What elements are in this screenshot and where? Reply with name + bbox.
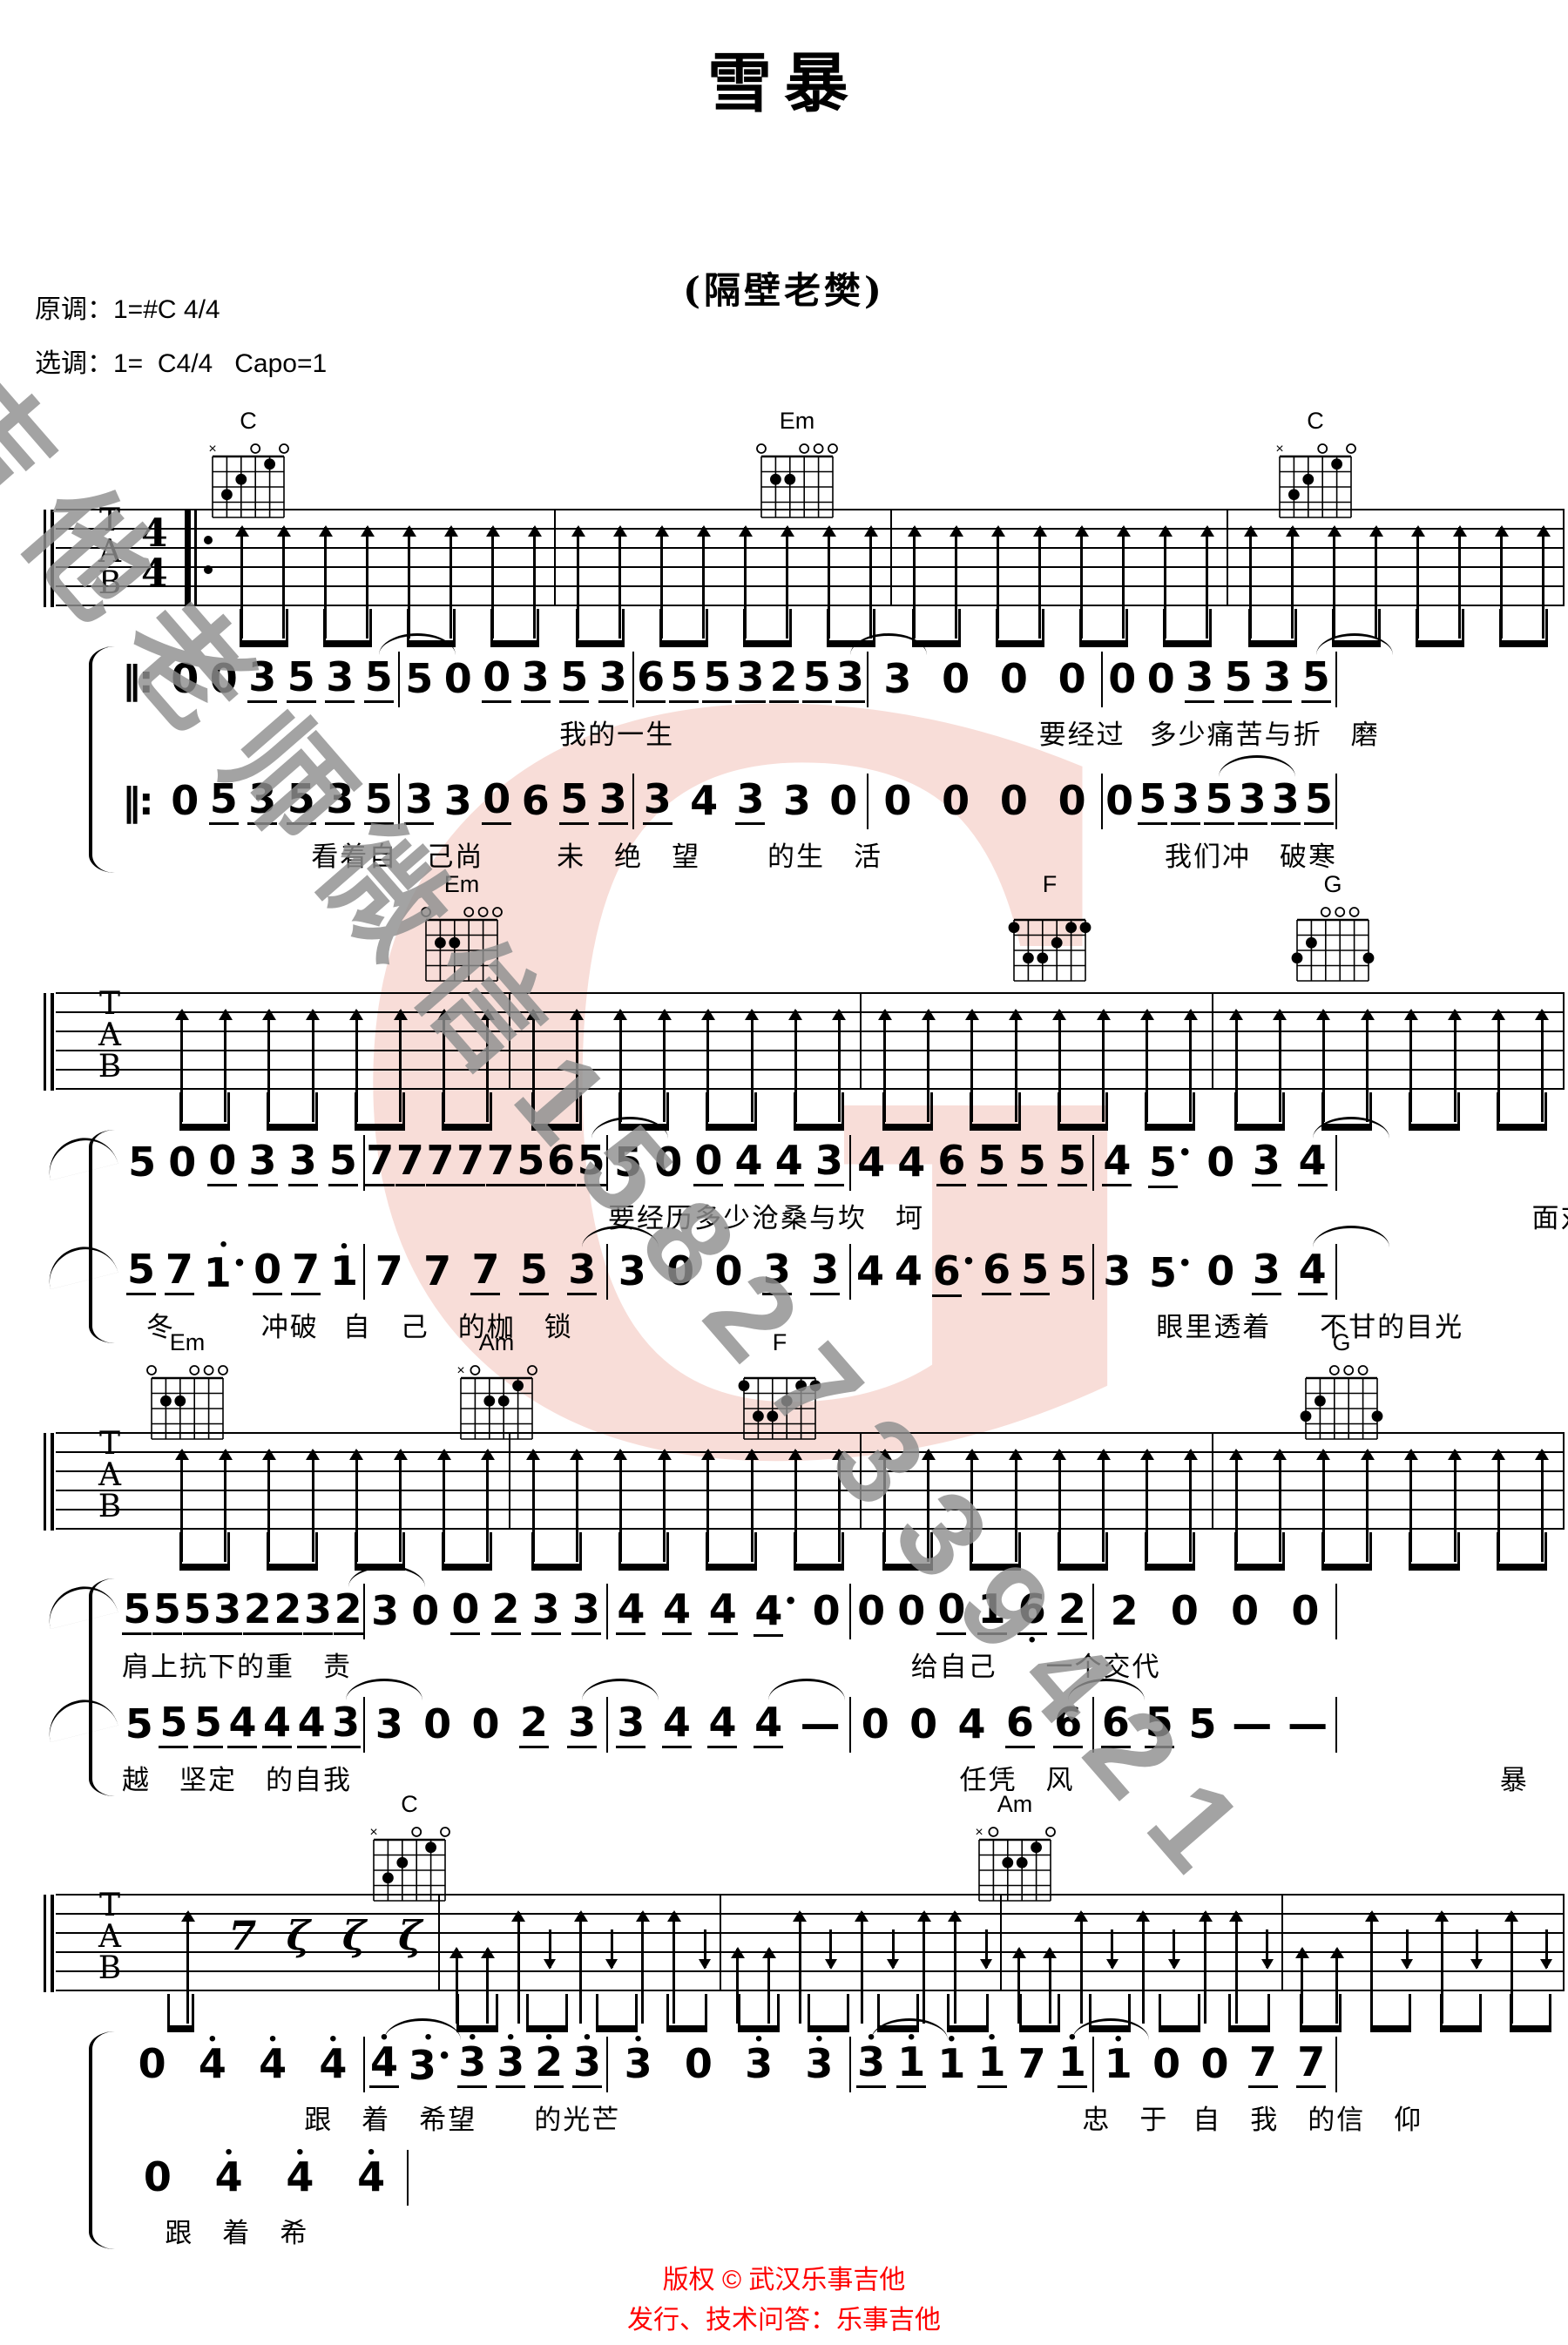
time-signature-digit: 4 [141,551,168,596]
note-digit: 0 [812,1590,841,1634]
jianpu-note: 3 [248,1139,278,1186]
jianpu-note: 4 [1298,1248,1328,1295]
jianpu-note: 3 [457,2041,487,2088]
quarter-rest: ζ [287,1912,310,1959]
jianpu-note: 5 [1224,656,1254,703]
lyric-measure: 我们冲 破寒 [1092,835,1337,871]
beam-group [1510,1994,1551,2032]
note-digit: 0 [999,658,1029,702]
jianpu-note: 7 [291,1248,321,1295]
tab-measures [159,993,1565,1089]
jianpu-note: 0 [138,2043,167,2087]
system-start-bar-outer [44,993,46,1091]
jianpu-note: 5 [613,1141,643,1186]
jianpu-note: 2 [769,656,799,703]
jianpu-note: 5 [1017,1139,1047,1186]
jianpu-note: 1 [1058,2041,1087,2088]
beam-group [179,1092,230,1131]
jianpu-note: 3 [288,1139,318,1186]
jianpu-note: 0 [882,780,912,824]
chord-diagram: F [1006,871,1093,992]
jianpu-note: 5 [122,1588,152,1635]
chord-name: F [1006,871,1093,897]
beam-group [882,1092,933,1131]
downstroke-arrow [704,1929,706,1968]
jianpu-measure: 3000 [868,652,1103,707]
note-digit: 5 [1020,1248,1050,1295]
note-digit: 4 [1298,1139,1328,1186]
tab-measure [556,510,892,605]
chord-name: G [1289,871,1376,897]
chord-name: F [736,1329,823,1355]
note-digit: 3 [882,658,912,702]
jianpu-measure: 30023 [365,1697,608,1753]
lyric-measure [929,835,1092,871]
note-digit: 0 [422,1703,452,1747]
note-digit: 2 [1110,1590,1139,1634]
note-digit: 0 [693,1139,723,1186]
chord-name: Em [754,408,841,434]
note-digit: 4 [227,1701,257,1748]
jianpu-note: 3 [496,2041,525,2088]
note-digit: 7 [291,1248,321,1295]
jianpu-measure: 053535 [166,774,400,829]
tab-measure [721,1895,1003,1990]
beam-group [576,609,625,647]
jianpu-measure: 571•071 [122,1244,365,1300]
beam-group [659,609,708,647]
beam-group [1079,609,1128,647]
note-digit: 5 [1138,778,1167,825]
jianpu-line: 5554443300233444—00466655—— [122,1697,1337,1753]
lyric-measure: 肩上抗下的重 责 [122,1645,352,1681]
note-digit: 6 [936,1139,966,1186]
note-digit: 3 [835,656,865,703]
note-digit: 0 [936,1588,966,1635]
jianpu-measure: 003535 [166,652,400,707]
jianpu-note: 5 [404,658,434,702]
note-digit: 2 [519,1701,549,1748]
jianpu-note: 0 [693,1139,723,1186]
lyric-measure: 多少沧桑与坎 坷 [694,1196,924,1233]
note-digit: 3 [531,1588,561,1635]
note-digit: 5 [1058,1250,1088,1294]
jianpu-note: 6 [936,1139,966,1186]
beam-group [794,1532,844,1571]
note-digit: 5 [1017,1139,1047,1186]
note-digit: 7 [365,1139,395,1186]
system-brace [89,1130,115,1343]
note-digit: 5 [1301,656,1331,703]
jianpu-note: 4• [754,1586,795,1637]
tab-measure [159,1433,510,1529]
jianpu-note: 2 [1110,1590,1139,1634]
upstroke-arrow [861,1912,863,2024]
jianpu-line: ‖:0535353306533433000000535335 [122,774,1337,829]
note-digit: 3 [598,778,628,825]
note-digit: 1 [329,1250,359,1294]
note-digit: 0 [1170,1590,1200,1634]
jianpu-note: 5 [287,656,316,703]
jianpu-measure: 0444 [122,2037,365,2092]
jianpu-measure: 55532232 [122,1584,365,1639]
jianpu-measure: 500353 [400,652,634,707]
jianpu-note: 3• [408,2041,449,2089]
beam-group [794,1092,844,1131]
beam-group [1416,609,1464,647]
beam-group [179,1532,230,1571]
note-digit: 2 [334,1588,363,1635]
lyric-measure: 自 我 的信 仰 [1168,2098,1423,2134]
jianpu-note: 3 [835,656,865,703]
dotted-note-dot: • [235,1248,245,1277]
tab-measure [1213,993,1565,1089]
note-digit: 4 [616,1588,645,1635]
note-digit: 5 [125,1703,154,1747]
jianpu-measure: 34330 [634,774,868,829]
beam-group [1159,1994,1200,2032]
note-digit: 3 [496,2041,525,2088]
tab-staff: TAB [56,1433,1565,1529]
jianpu-note: 0 [1152,2043,1181,2087]
beam-group [1440,1994,1482,2032]
note-digit: 4 [198,2043,227,2087]
beam-group [1300,1994,1342,2032]
beam-group [442,1092,492,1131]
jianpu-note: 4 [198,2043,227,2087]
tab-letter: A [92,534,127,570]
note-digit: 5 [126,1248,156,1295]
beam-group [442,1532,492,1571]
jianpu-note: 0 [207,1139,237,1186]
jianpu-measure: 4444•0 [608,1584,851,1639]
downstroke-arrow [985,1929,988,1968]
lyric-row: 要经历多少沧桑与坎 坷面对着生 活 抛给你的苦涩 抱着 [122,1196,1337,1233]
jianpu-measure: 300233 [365,1584,608,1639]
downstroke-arrow [829,1929,832,1968]
jianpu-note: 0 [1206,1250,1235,1294]
note-digit: 3 [810,1248,840,1295]
jianpu-note: 2 [534,2041,564,2088]
note-digit: — [1287,1703,1328,1747]
downstroke-arrow [549,1929,551,1968]
note-digit: 1 [936,2043,966,2087]
note-digit: 2 [273,1588,302,1635]
jianpu-note: 7 [486,1139,516,1186]
note-digit: 5 [519,1248,549,1295]
jianpu-note: 5 [1020,1248,1050,1295]
jianpu-note: 0 [482,778,511,825]
jianpu-note: 3 [735,778,765,825]
jianpu-measure: 6553253 [634,652,868,707]
note-digit: 7 [422,1250,452,1294]
jianpu-note: 6 [1005,1701,1035,1748]
jianpu-note: 6 [1101,1701,1131,1748]
note-digit: 7 [1017,2043,1047,2087]
jianpu-note: 3 [443,780,473,824]
note-digit: 5 [577,1139,606,1186]
note-digit: 0 [1146,658,1176,702]
tab-measure [1002,1895,1283,1990]
jianpu-measure: 330653 [400,774,634,829]
jianpu-note: 6 [636,656,666,703]
note-digit: 7 [395,1139,425,1186]
tab-measure [510,993,862,1089]
jianpu-note: 5 [669,656,699,703]
note-digit: 0 [482,656,511,703]
note-digit: 4 [707,1701,737,1748]
beam-group [1145,1092,1195,1131]
jianpu-note: 0 [941,780,970,824]
downstroke-arrow [611,1929,613,1968]
note-digit: 5 [122,1588,152,1635]
jianpu-note: 5 [802,656,832,703]
jianpu-note: 0 [1105,780,1134,824]
jianpu-line: 044443•3323303331117110077 [122,2037,1337,2092]
note-digit: 5 [1148,1141,1178,1188]
jianpu-note: 0 [143,2156,172,2200]
jianpu-note: 4 [227,1701,257,1748]
beam-group [1321,1532,1372,1571]
jianpu-note: 4 [754,1701,783,1748]
jianpu-note: 5 [152,1588,182,1635]
beam-group [1058,1532,1108,1571]
beam-group [618,1532,669,1571]
note-digit: 5 [404,658,434,702]
jianpu-note: 0 [482,656,511,703]
jianpu-note: 3 [247,656,277,703]
lyric-measure: 忠 于 [620,2098,1168,2134]
note-digit: 4 [1102,1139,1132,1186]
note-digit: 5 [183,1588,213,1635]
jianpu-note: 0 [1058,658,1087,702]
note-digit: 0 [856,1590,886,1634]
jianpu-note: 5 [1058,1250,1088,1294]
downstroke-arrow [892,1929,895,1968]
jianpu-note: 3 [618,1250,647,1294]
jianpu-note: 2 [243,1588,273,1635]
note-digit: 4 [662,1588,692,1635]
note-digit: 3 [408,2044,437,2089]
repeat-dot [204,565,213,574]
note-digit: 6 [1017,1588,1047,1635]
note-digit: 0 [1152,2043,1181,2087]
note-digit: 5 [1204,778,1233,825]
note-digit: 6 [1101,1701,1131,1748]
beam-group [596,1994,638,2032]
note-digit: 5 [1058,1139,1087,1186]
tab-measure [862,1433,1213,1529]
note-digit: 3 [1252,1248,1281,1295]
jianpu-note: 3 [325,656,355,703]
beam-group [706,1092,756,1131]
tab-measures: 7ζζζ [159,1895,1565,1990]
tab-letter: T [92,1426,127,1462]
jianpu-measure: 000162 [851,1584,1094,1639]
upstroke-arrow [1204,1912,1206,2024]
tab-measure [1213,1433,1565,1529]
note-digit: 4 [689,780,719,824]
jianpu-note: 0 [999,780,1029,824]
note-digit: 3 [1252,1139,1281,1186]
jianpu-note: 1• [203,1248,245,1296]
tab-letter: B [92,1950,127,1986]
jianpu-note: 6 [521,780,551,824]
jianpu-note: 5• [1148,1138,1190,1188]
system-start-bar [51,993,54,1091]
system-start-bar-outer [44,510,46,607]
beam-group [970,1092,1020,1131]
note-digit: 0 [1058,658,1087,702]
note-digit: 0 [253,1248,282,1295]
lyric-row: 跟 着 希望 的光芒忠 于自 我 的信 仰并着 [122,2098,1337,2134]
jianpu-note: 4 [214,2156,244,2200]
lyric-measure: 眼里透着 [573,1305,1272,1341]
tab-measure [510,1433,862,1529]
jianpu-note: 1 [1104,2043,1133,2087]
jianpu-note: 0 [443,658,473,702]
chord-name: Am [453,1329,540,1355]
note-digit: 0 [1105,780,1134,824]
lyric-measure: 一个交代 [997,1645,1161,1681]
note-digit: 1 [977,1588,1007,1635]
note-digit: 0 [410,1590,440,1634]
repeat-bar-thin [194,510,197,605]
jianpu-note: 3 [744,2043,774,2087]
lyric-row: 跟 着 希 [122,2211,409,2247]
note-digit: 4 [956,1703,986,1747]
note-digit: 3 [375,1703,404,1747]
jianpu-note: 0 [1230,1590,1260,1634]
jianpu-note: 5 [1058,1139,1087,1186]
jianpu-note: 5 [559,656,589,703]
jianpu-note: 5 [516,1139,545,1186]
jianpu-note: 6 [1053,1701,1083,1748]
note-digit: 1 [203,1252,233,1296]
jianpu-note: 3 [762,1248,792,1295]
lyric-row: 越 坚定 的自我任凭 风暴卷 不倒我 [122,1758,1337,1794]
upstroke-arrow [517,1912,520,2024]
lyric-measure: 暴 [1075,1758,1529,1794]
lyric-measure: 跟 着 希 [122,2211,409,2247]
note-digit: 6 [521,780,551,824]
downstroke-arrow [1476,1929,1478,1968]
lyric-measure: 就好了 [1160,1645,1568,1681]
jianpu-line: 5003357777756550044344655545•034 [122,1135,1337,1191]
note-digit: 4 [356,2156,386,2200]
jianpu-note: 5 [127,1141,157,1186]
note-digit: 0 [170,780,199,824]
jianpu-note: 3 [856,2041,886,2088]
quarter-rest: ζ [398,1912,422,1959]
note-digit: 0 [941,658,970,702]
tab-letter: A [92,1017,127,1053]
system-brace [89,2031,115,2249]
note-digit: 0 [713,1250,743,1294]
note-digit: 0 [482,778,511,825]
downstroke-arrow [1111,1929,1113,1968]
note-digit: 6 [1005,1701,1035,1748]
jianpu-note: 5 [193,1701,223,1748]
note-digit: 5 [287,656,316,703]
note-digit: 0 [666,1250,695,1294]
note-digit: 1 [1058,2041,1087,2088]
jianpu-note: 0 [470,1703,500,1747]
jianpu-note: 7 [470,1248,500,1295]
tab-staff: TAB7ζζζ [56,1895,1565,1990]
note-digit: 7 [165,1248,194,1295]
note-digit: 3 [572,2041,602,2088]
jianpu-note: 0 [828,780,858,824]
jianpu-note: 3 [804,2043,834,2087]
lyric-measure: 卷 不倒 [1529,1758,1568,1794]
jianpu-note: 3 [247,778,277,825]
jianpu-note: 3 [1252,1248,1281,1295]
note-digit: 5 [1148,1252,1178,1296]
jianpu-note: 5 [209,778,239,825]
tie-arc [1316,633,1393,655]
jianpu-note: 0 [1107,658,1137,702]
note-digit: 0 [1206,1141,1235,1186]
beam-group [1234,1092,1285,1131]
jianpu-note: 3 [810,1248,840,1295]
beam-group [490,609,539,647]
svg-text:×: × [456,1363,464,1378]
jianpu-note: 0 [170,780,199,824]
note-digit: 3 [213,1588,242,1635]
jianpu-note: 4 [707,1701,737,1748]
jianpu-note: 2 [273,1588,302,1635]
note-digit: 5 [559,778,589,825]
time-signature-digit: 4 [141,511,168,556]
jianpu-line: 555322323002334444•00001622000 [122,1584,1337,1639]
lyric-measure: 望 的光芒 [448,2098,620,2134]
note-digit: 3 [247,656,277,703]
beam-group [456,1994,498,2032]
upstroke-arrow [923,1912,925,2024]
beam-group [267,1532,317,1571]
note-digit: 4 [896,1141,926,1186]
note-digit: 0 [882,780,912,824]
note-digit: 3 [1271,778,1301,825]
chord-name: Em [144,1329,231,1355]
jianpu-measure: 30033 [608,1244,851,1300]
jianpu-note: — [1231,1703,1273,1747]
note-digit: 4 [774,1139,804,1186]
jianpu-note: 1 [977,2041,1007,2088]
lyric-measure: 跟 着 希 [122,2098,448,2134]
jianpu-note: 4 [734,1139,764,1186]
beam-group [1163,609,1212,647]
note-digit: 0 [167,1141,197,1186]
artist-name: (隔壁老樊) [0,261,1568,314]
jianpu-measure: 5554443 [122,1697,365,1753]
dotted-note-dot: • [964,1247,974,1275]
jianpu-note: 0 [1200,2043,1229,2087]
tab-staff: TAB44 [56,510,1565,605]
upstroke-arrow [1080,1912,1083,2024]
jianpu-note: 4 [1102,1139,1132,1186]
note-digit: 4 [1298,1248,1328,1295]
note-digit: 3 [624,2043,653,2087]
jianpu-note: 6 [1017,1588,1047,1635]
lyric-measure: 多少痛苦与折 磨 [1125,713,1380,749]
jianpu-note: 1 [936,2043,966,2087]
jianpu-note: 0 [1146,658,1176,702]
jianpu-note: 4 [662,1701,692,1748]
note-digit: 5 [152,1588,182,1635]
note-digit: 6 [636,656,666,703]
